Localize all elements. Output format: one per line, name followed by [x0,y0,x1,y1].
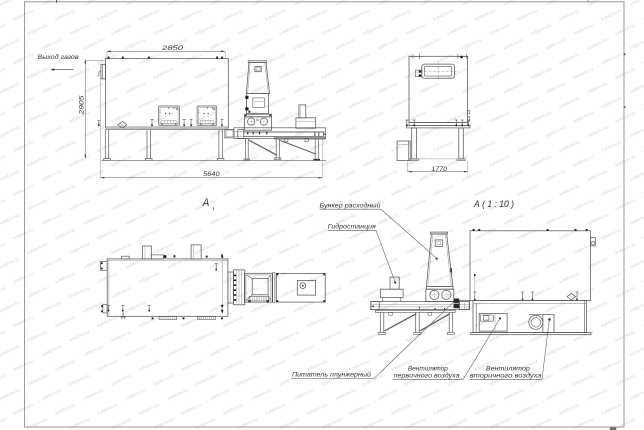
svg-text:2850: 2850 [161,45,184,52]
svg-text:А ( 1 : 10 ): А ( 1 : 10 ) [473,199,514,210]
svg-text:Выход газов: Выход газов [38,53,80,61]
svg-text:5640: 5640 [203,171,220,178]
svg-text:Вентилятор: Вентилятор [486,366,530,373]
svg-text:первичного воздуха: первичного воздуха [394,372,460,380]
svg-text:Вентилятор: Вентилятор [408,366,448,373]
svg-text:2905: 2905 [78,95,85,116]
svg-text:A: A [202,197,209,209]
svg-text:Бункер расходный: Бункер расходный [320,202,381,210]
svg-text:вторичного воздуха: вторичного воздуха [470,372,542,380]
svg-text:1770: 1770 [432,166,448,173]
svg-text:Питатель плунжерный: Питатель плунжерный [292,371,371,379]
svg-text:Гидростанция: Гидростанция [328,223,376,231]
